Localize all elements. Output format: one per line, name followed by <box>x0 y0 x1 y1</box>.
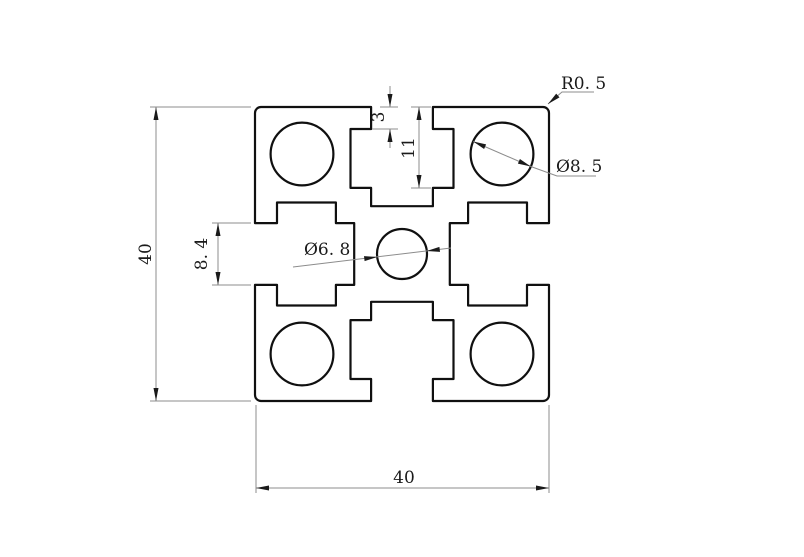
arrowhead <box>216 223 221 236</box>
corner-hole-bottom-left <box>271 323 334 386</box>
arrowhead <box>388 94 393 107</box>
leader-corner-radius: R0. 5 <box>548 74 606 104</box>
dim-text-corner-radius: R0. 5 <box>561 74 606 94</box>
arrowhead <box>154 388 159 401</box>
corner-hole-top-left <box>271 123 334 186</box>
drawing-canvas: 40 8. 4 3 11 R0. 5 Ø8. 5 <box>0 0 804 557</box>
dim-slot-depth: 11 <box>399 107 431 188</box>
arrowhead <box>216 272 221 285</box>
dim-text-slot-opening: 8. 4 <box>192 238 212 270</box>
corner-hole-bottom-right <box>471 323 534 386</box>
arrowhead <box>388 129 393 142</box>
dim-overall-width: 40 <box>256 405 549 493</box>
arrowhead <box>256 486 269 491</box>
dim-text-overall-width: 40 <box>393 468 415 488</box>
dim-text-overall-height: 40 <box>136 243 156 265</box>
arrowhead <box>417 107 422 120</box>
arrowhead <box>417 175 422 188</box>
dim-text-corner-hole: Ø8. 5 <box>556 157 602 177</box>
dim-text-slot-lip: 3 <box>369 112 389 123</box>
arrowhead <box>536 486 549 491</box>
technical-drawing: 40 8. 4 3 11 R0. 5 Ø8. 5 <box>0 0 804 557</box>
dim-text-slot-depth: 11 <box>399 137 419 159</box>
dim-slot-lip: 3 <box>369 86 398 148</box>
dim-slot-opening: 8. 4 <box>192 223 251 285</box>
dim-text-center-hole: Ø6. 8 <box>304 240 350 260</box>
arrowhead <box>154 107 159 120</box>
